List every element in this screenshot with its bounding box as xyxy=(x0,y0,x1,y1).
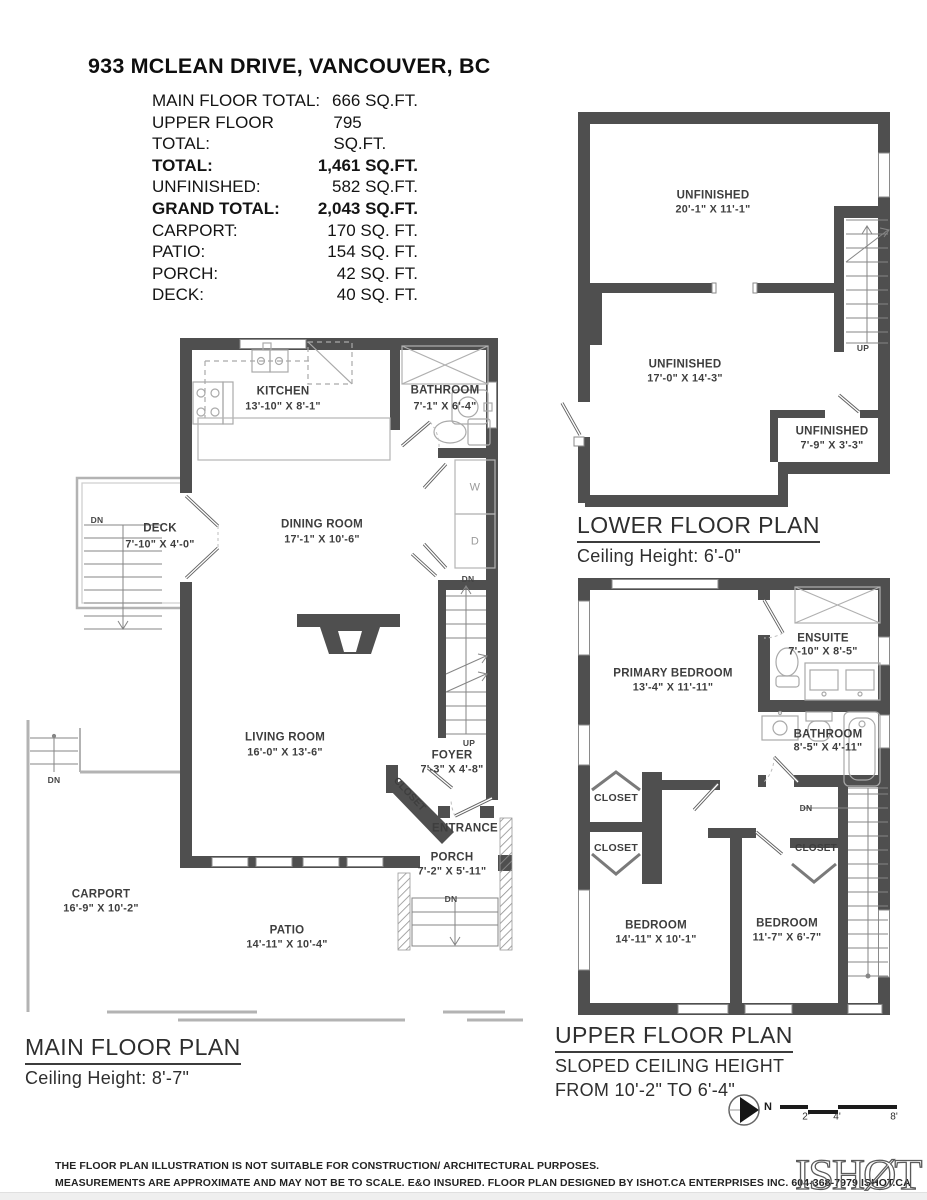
stair-label-dn-upper: DN xyxy=(800,804,813,813)
summary-value: 154 SQ. FT. xyxy=(327,241,418,263)
summary-value: 582 SQ.FT. xyxy=(332,176,418,198)
room-dims-porch: 7'-2" X 5'-11" xyxy=(418,867,487,878)
room-label-foyer: FOYER xyxy=(432,750,473,762)
stair-label-dn-main: DN xyxy=(462,575,475,584)
summary-label: PORCH: xyxy=(152,263,218,285)
summary-label: MAIN FLOOR TOTAL: xyxy=(152,90,320,112)
main-plan-title-block: MAIN FLOOR PLAN Ceiling Height: 8'-7" xyxy=(25,1034,241,1089)
room-label-closet2: CLOSET xyxy=(594,843,638,854)
summary-row-total: TOTAL:1,461 SQ.FT. xyxy=(152,155,418,177)
summary-value: 42 SQ. FT. xyxy=(337,263,418,285)
upper-plan-title-block: UPPER FLOOR PLAN SLOPED CEILING HEIGHT F… xyxy=(555,1022,793,1101)
room-label-ensuite: ENSUITE xyxy=(797,633,849,645)
room-dims-foyer: 7'-3" X 4'-8" xyxy=(420,765,483,776)
dryer-label: D xyxy=(471,537,479,548)
upper-fixtures xyxy=(762,587,880,786)
summary-row: CARPORT:170 SQ. FT. xyxy=(152,220,418,242)
floorplan-page: 933 MCLEAN DRIVE, VANCOUVER, BC MAIN FLO… xyxy=(0,0,927,1200)
disclaimer-line2: MEASUREMENTS ARE APPROXIMATE AND MAY NOT… xyxy=(55,1177,911,1189)
summary-row: MAIN FLOOR TOTAL:666 SQ.FT. xyxy=(152,90,418,112)
room-dims-patio: 14'-11" X 10'-4" xyxy=(246,940,327,951)
room-label-primary-bedroom: PRIMARY BEDROOM xyxy=(613,668,732,680)
summary-value: 2,043 SQ.FT. xyxy=(318,198,418,220)
room-label-unfinished1: UNFINISHED xyxy=(677,190,750,202)
summary-label: UNFINISHED: xyxy=(152,176,261,198)
summary-label: PATIO: xyxy=(152,241,205,263)
stair-label-dn-carport: DN xyxy=(48,776,61,785)
summary-label: GRAND TOTAL: xyxy=(152,198,280,220)
stair-label-up-lower: UP xyxy=(857,344,869,353)
fireplace xyxy=(297,614,400,654)
lower-floor-plan-drawing xyxy=(550,100,927,520)
lower-plan-title: LOWER FLOOR PLAN xyxy=(577,512,820,543)
stair-label-up-main: UP xyxy=(463,739,475,748)
room-label-unfinished2: UNFINISHED xyxy=(649,359,722,371)
summary-label: CARPORT: xyxy=(152,220,238,242)
scale-tick-8ft: 8' xyxy=(890,1112,897,1123)
room-dims-unfinished2: 17'-0" X 14'-3" xyxy=(647,374,723,385)
room-dims-living: 16'-0" X 13'-6" xyxy=(247,748,323,759)
room-label-bedroom1: BEDROOM xyxy=(625,920,687,932)
room-dims-ensuite: 7'-10" X 8'-5" xyxy=(788,647,857,658)
summary-label: UPPER FLOOR TOTAL: xyxy=(152,112,333,155)
room-label-dining: DINING ROOM xyxy=(281,519,363,531)
room-label-closet3: CLOSET xyxy=(795,844,837,854)
room-label-carport: CARPORT xyxy=(72,889,131,901)
room-dims-bathroom-upper: 8'-5" X 4'-11" xyxy=(794,743,863,754)
room-dims-bedroom1: 14'-11" X 10'-1" xyxy=(615,935,696,946)
room-dims-primary-bedroom: 13'-4" X 11'-11" xyxy=(633,683,714,694)
room-dims-bedroom2: 11'-7" X 6'-7" xyxy=(753,933,822,944)
room-dims-kitchen: 13'-10" X 8'-1" xyxy=(245,402,321,413)
upper-plan-title: UPPER FLOOR PLAN xyxy=(555,1022,793,1053)
room-label-kitchen: KITCHEN xyxy=(257,386,310,398)
summary-value: 795 SQ.FT. xyxy=(333,112,418,155)
summary-row: UPPER FLOOR TOTAL:795 SQ.FT. xyxy=(152,112,418,155)
room-label-patio: PATIO xyxy=(270,925,305,937)
main-plan-title: MAIN FLOOR PLAN xyxy=(25,1034,241,1065)
room-label-unfinished3: UNFINISHED xyxy=(796,426,869,438)
summary-label: TOTAL: xyxy=(152,155,213,177)
stair-label-dn-deck: DN xyxy=(91,516,104,525)
room-dims-unfinished1: 20'-1" X 11'-1" xyxy=(676,205,751,216)
washer-label: W xyxy=(470,483,481,494)
bottom-edge-strip xyxy=(0,1192,927,1200)
room-label-closet1: CLOSET xyxy=(594,793,638,804)
room-label-bedroom2: BEDROOM xyxy=(756,918,818,930)
summary-value: 1,461 SQ.FT. xyxy=(318,155,418,177)
summary-value: 170 SQ. FT. xyxy=(327,220,418,242)
room-label-bathroom-upper: BATHROOM xyxy=(794,729,863,741)
upper-doors xyxy=(694,600,798,854)
room-dims-dining: 17'-1" X 10'-6" xyxy=(284,535,360,546)
summary-row: UNFINISHED:582 SQ.FT. xyxy=(152,176,418,198)
room-label-porch: PORCH xyxy=(431,852,474,864)
summary-label: DECK: xyxy=(152,284,204,306)
stair-label-dn-porch: DN xyxy=(445,895,458,904)
summary-value: 40 SQ. FT. xyxy=(337,284,418,306)
summary-row: DECK:40 SQ. FT. xyxy=(152,284,418,306)
scale-tick-2ft: 2' xyxy=(802,1112,809,1123)
room-label-deck: DECK xyxy=(143,523,177,535)
summary-value: 666 SQ.FT. xyxy=(332,90,418,112)
summary-row-grand-total: GRAND TOTAL:2,043 SQ.FT. xyxy=(152,198,418,220)
room-dims-deck: 7'-10" X 4'-0" xyxy=(125,540,194,551)
main-plan-subtitle: Ceiling Height: 8'-7" xyxy=(25,1068,241,1089)
room-dims-bathroom-main: 7'-1" X 6'-4" xyxy=(413,402,476,413)
upper-plan-subtitle1: SLOPED CEILING HEIGHT xyxy=(555,1056,793,1077)
summary-row: PATIO:154 SQ. FT. xyxy=(152,241,418,263)
room-label-entrance: ENTRANCE xyxy=(432,823,498,835)
lower-plan-title-block: LOWER FLOOR PLAN Ceiling Height: 6'-0" xyxy=(577,512,820,567)
room-label-bathroom-main: BATHROOM xyxy=(411,385,480,397)
area-summary-table: MAIN FLOOR TOTAL:666 SQ.FT. UPPER FLOOR … xyxy=(152,90,418,306)
summary-row: PORCH:42 SQ. FT. xyxy=(152,263,418,285)
room-label-living: LIVING ROOM xyxy=(245,732,325,744)
page-title: 933 MCLEAN DRIVE, VANCOUVER, BC xyxy=(88,54,490,79)
room-dims-unfinished3: 7'-9" X 3'-3" xyxy=(800,441,863,452)
disclaimer-line1: THE FLOOR PLAN ILLUSTRATION IS NOT SUITA… xyxy=(55,1160,599,1172)
room-dims-carport: 16'-9" X 10'-2" xyxy=(63,904,139,915)
scale-tick-4ft: 4' xyxy=(833,1112,840,1123)
north-label: N xyxy=(764,1101,772,1113)
lower-plan-subtitle: Ceiling Height: 6'-0" xyxy=(577,546,820,567)
